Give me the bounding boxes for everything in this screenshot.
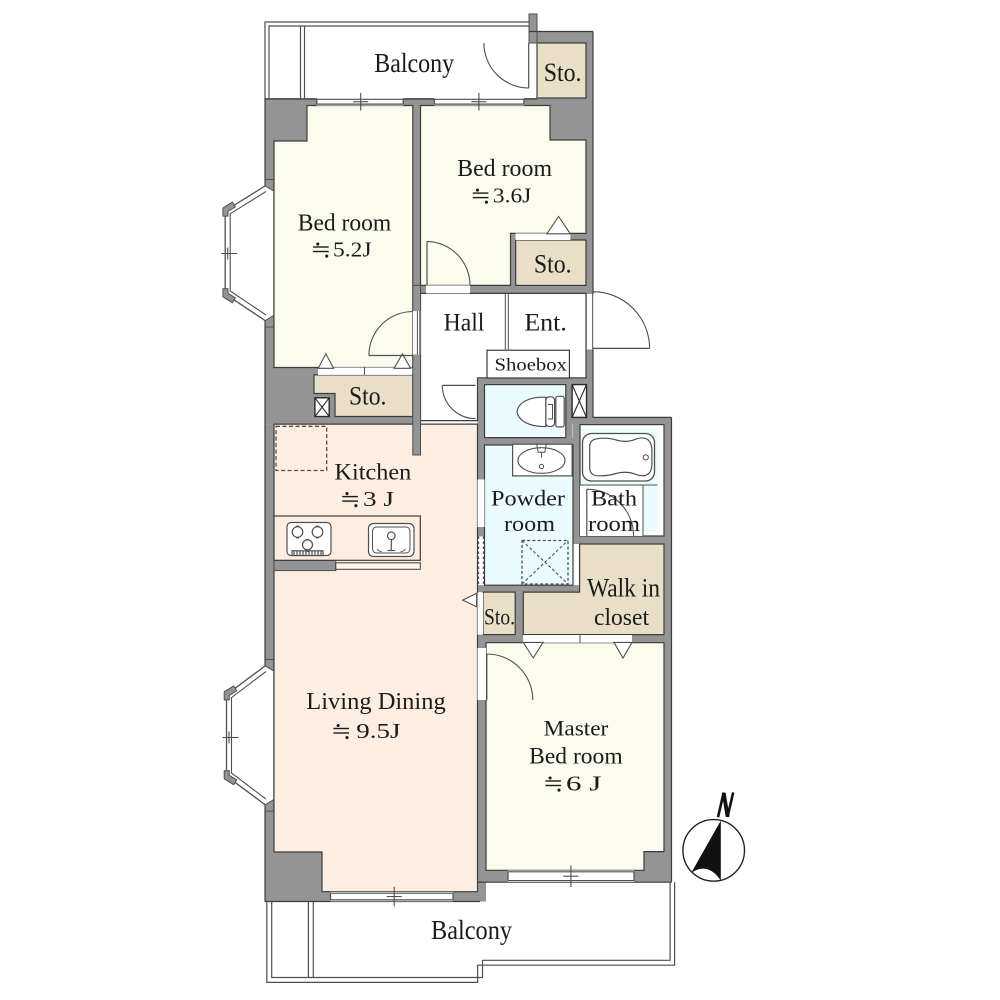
svg-text:closet: closet — [594, 605, 649, 631]
svg-text:Hall: Hall — [444, 308, 485, 337]
svg-text:Kitchen: Kitchen — [335, 460, 412, 486]
svg-text:3 J: 3 J — [363, 487, 394, 511]
svg-text:Powder: Powder — [491, 486, 566, 511]
svg-text:Ent.: Ent. — [524, 308, 567, 337]
svg-text:Sto.: Sto. — [544, 58, 582, 87]
svg-text:Balcony: Balcony — [374, 48, 454, 78]
svg-text:room: room — [504, 511, 555, 536]
svg-text:Shoebox: Shoebox — [495, 355, 567, 375]
svg-text:Bed room: Bed room — [298, 210, 392, 236]
svg-text:Bed room: Bed room — [457, 156, 552, 182]
svg-text:Sto.: Sto. — [534, 250, 572, 279]
svg-text:5.2J: 5.2J — [333, 237, 372, 261]
svg-text:Living Dining: Living Dining — [306, 689, 445, 715]
svg-text:3.6J: 3.6J — [493, 184, 531, 208]
svg-text:Walk in: Walk in — [587, 574, 660, 603]
svg-text:Bed room: Bed room — [529, 744, 623, 769]
svg-text:9.5J: 9.5J — [356, 719, 400, 743]
svg-text:Bath: Bath — [591, 486, 637, 511]
svg-text:Master: Master — [544, 715, 609, 740]
svg-text:Sto.: Sto. — [349, 381, 386, 410]
svg-text:room: room — [588, 511, 640, 536]
svg-text:Balcony: Balcony — [431, 915, 512, 945]
svg-text:6 J: 6 J — [566, 771, 602, 795]
svg-text:Sto.: Sto. — [484, 605, 515, 630]
